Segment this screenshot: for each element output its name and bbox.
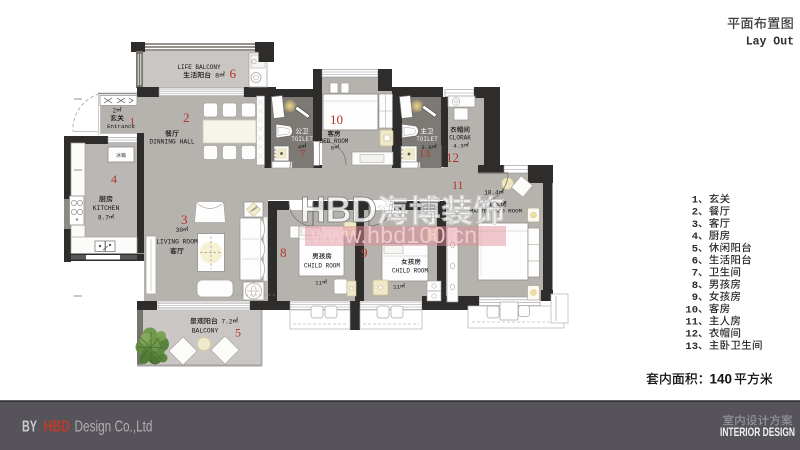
svg-text:11: 11	[685, 317, 698, 329]
svg-text:INTERIOR DESIGN: INTERIOR DESIGN	[720, 427, 795, 439]
svg-text:7.2: 7.2	[218, 319, 233, 326]
svg-text:18.4: 18.4	[484, 190, 499, 197]
svg-text:6: 6	[230, 66, 237, 81]
svg-text:CHILD ROOM: CHILD ROOM	[304, 263, 340, 270]
svg-text:BALCONY: BALCONY	[192, 328, 219, 335]
svg-text:8: 8	[692, 280, 698, 292]
svg-text:2: 2	[183, 110, 190, 125]
svg-text:CHILD ROOM: CHILD ROOM	[392, 268, 428, 275]
svg-text:2: 2	[692, 207, 698, 219]
svg-text:8: 8	[280, 245, 287, 260]
svg-text:BY: BY	[22, 419, 37, 436]
svg-text:8: 8	[331, 145, 335, 152]
svg-text:30: 30	[176, 227, 184, 234]
svg-text:12: 12	[685, 329, 698, 341]
svg-text:10: 10	[330, 112, 343, 127]
svg-text:13: 13	[685, 341, 698, 353]
svg-text:7: 7	[692, 268, 698, 280]
svg-text:8: 8	[211, 73, 219, 80]
svg-text:HBD: HBD	[44, 419, 71, 436]
svg-text:LIVING ROOM: LIVING ROOM	[156, 239, 198, 246]
svg-text:6: 6	[692, 256, 698, 268]
svg-text:2: 2	[113, 108, 117, 115]
svg-text:TOILET: TOILET	[291, 136, 313, 143]
svg-text:3: 3	[181, 212, 188, 227]
svg-text:Lay Out: Lay Out	[746, 36, 794, 49]
svg-text:TOILET: TOILET	[416, 136, 438, 143]
svg-text:LIFE BALCONY: LIFE BALCONY	[177, 64, 221, 71]
svg-text:8.7: 8.7	[98, 215, 109, 222]
svg-text:CLORAK: CLORAK	[449, 135, 471, 142]
svg-text:4: 4	[692, 231, 698, 243]
svg-text:9: 9	[692, 292, 698, 304]
svg-text:1: 1	[692, 195, 698, 207]
svg-text:11: 11	[452, 178, 464, 192]
svg-text:4.3: 4.3	[453, 143, 464, 150]
svg-text:1: 1	[130, 116, 136, 128]
svg-text:11: 11	[393, 284, 400, 291]
svg-text:5: 5	[692, 243, 698, 255]
svg-text:11: 11	[315, 280, 322, 287]
svg-text:KITCHEN: KITCHEN	[93, 205, 120, 212]
svg-text:12: 12	[446, 150, 459, 165]
svg-text:Design Co.,Ltd: Design Co.,Ltd	[75, 419, 153, 436]
svg-text:7: 7	[300, 148, 306, 160]
svg-text:13: 13	[419, 148, 431, 160]
svg-text:DINNING HALL: DINNING HALL	[149, 139, 195, 146]
svg-text:3: 3	[692, 219, 698, 231]
svg-text:140: 140	[710, 372, 733, 387]
svg-text:5: 5	[235, 326, 241, 340]
svg-text:10: 10	[685, 304, 698, 316]
svg-text:www.hbd100.cn: www.hbd100.cn	[310, 222, 477, 248]
svg-text:4: 4	[111, 172, 117, 186]
